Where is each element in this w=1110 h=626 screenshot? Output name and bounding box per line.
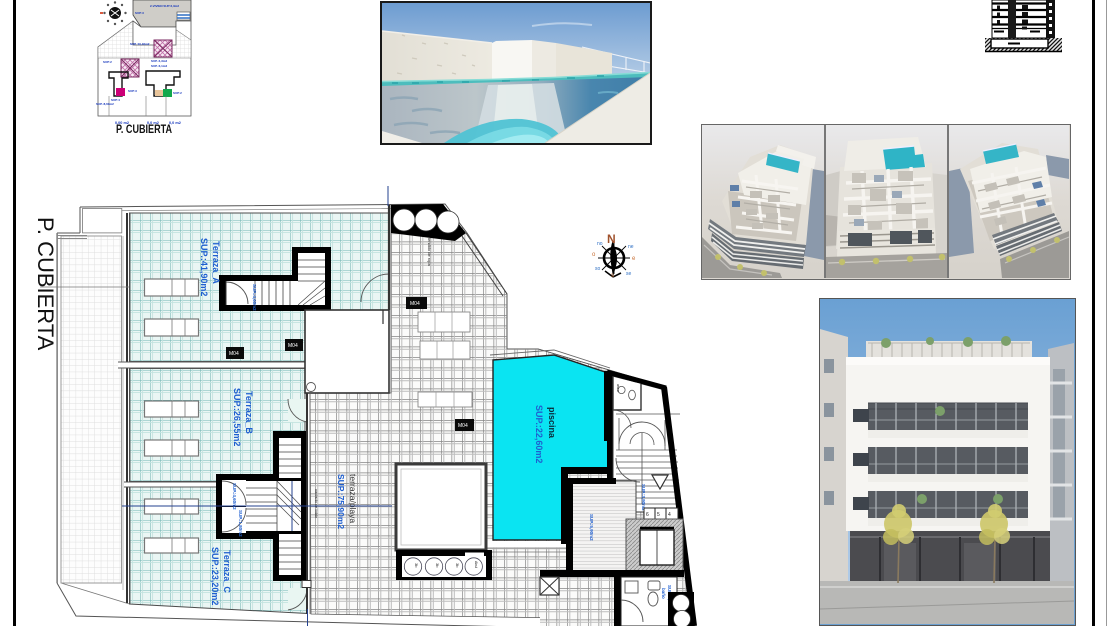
svg-text:3b: 3b <box>435 563 440 568</box>
svg-text:SUP.:10,40m2: SUP.:10,40m2 <box>130 42 150 46</box>
svg-text:M04: M04 <box>458 423 468 429</box>
svg-text:SUP.:26,55m2: SUP.:26,55m2 <box>232 388 242 446</box>
svg-text:Terraza_A: Terraza_A <box>211 241 221 284</box>
svg-text:SUP.:1,80m2: SUP.:1,80m2 <box>238 510 243 537</box>
svg-text:tendido de ropa: tendido de ropa <box>427 238 432 267</box>
svg-text:M04: M04 <box>229 351 239 357</box>
svg-text:SUP:3: SUP:3 <box>135 11 144 15</box>
svg-text:2-VIVIEN SUP:2,3m2: 2-VIVIEN SUP:2,3m2 <box>150 4 179 8</box>
svg-text:6: 6 <box>646 512 649 518</box>
svg-text:SUP.:5,90m2: SUP.:5,90m2 <box>589 514 594 541</box>
svg-text:SUP.:4,3m2: SUP.:4,3m2 <box>151 59 167 63</box>
svg-text:SUP.:22,60m2: SUP.:22,60m2 <box>534 405 544 463</box>
svg-text:N: N <box>607 232 616 246</box>
svg-text:M04: M04 <box>410 301 420 307</box>
svg-text:3b: 3b <box>455 563 460 568</box>
svg-text:Terraza_C: Terraza_C <box>222 550 232 593</box>
svg-text:SUP.:41,90m2: SUP.:41,90m2 <box>199 238 209 296</box>
svg-text:P. CUBIERTA: P. CUBIERTA <box>116 122 172 136</box>
svg-text:SUP.:3,1m2: SUP.:3,1m2 <box>151 64 167 68</box>
svg-text:SUP:2: SUP:2 <box>173 91 182 95</box>
svg-text:se: se <box>626 271 632 277</box>
svg-text:vaciado de toldo: vaciado de toldo <box>314 489 319 519</box>
svg-text:SUP.:3,90m2: SUP.:3,90m2 <box>641 484 646 511</box>
svg-text:M04: M04 <box>288 343 298 349</box>
svg-text:no: no <box>597 241 603 247</box>
svg-text:5: 5 <box>657 512 660 518</box>
svg-text:e: e <box>632 256 636 262</box>
svg-text:o: o <box>592 252 596 258</box>
svg-text:Abul: Abul <box>474 561 478 568</box>
svg-text:baño: baño <box>661 588 666 599</box>
svg-text:SUP.:4,60m2: SUP.:4,60m2 <box>252 284 257 311</box>
svg-text:Terraza_B: Terraza_B <box>244 391 254 434</box>
svg-text:terraza/playa: terraza/playa <box>348 474 358 523</box>
svg-text:ne: ne <box>628 244 634 250</box>
svg-text:SUP:3: SUP:3 <box>128 89 137 93</box>
svg-text:piscina: piscina <box>547 407 557 439</box>
svg-text:s: s <box>611 273 614 279</box>
svg-text:aseo: aseo <box>616 384 620 392</box>
svg-text:3b: 3b <box>414 563 419 568</box>
svg-text:4: 4 <box>668 512 671 518</box>
svg-text:SUP.:8,60m2: SUP.:8,60m2 <box>96 102 114 106</box>
svg-text:so: so <box>595 266 601 272</box>
svg-text:SUP.:75,90m2: SUP.:75,90m2 <box>336 474 346 529</box>
svg-text:SUP:2: SUP:2 <box>103 60 112 64</box>
svg-text:SUP.:23,20m2: SUP.:23,20m2 <box>210 547 220 605</box>
